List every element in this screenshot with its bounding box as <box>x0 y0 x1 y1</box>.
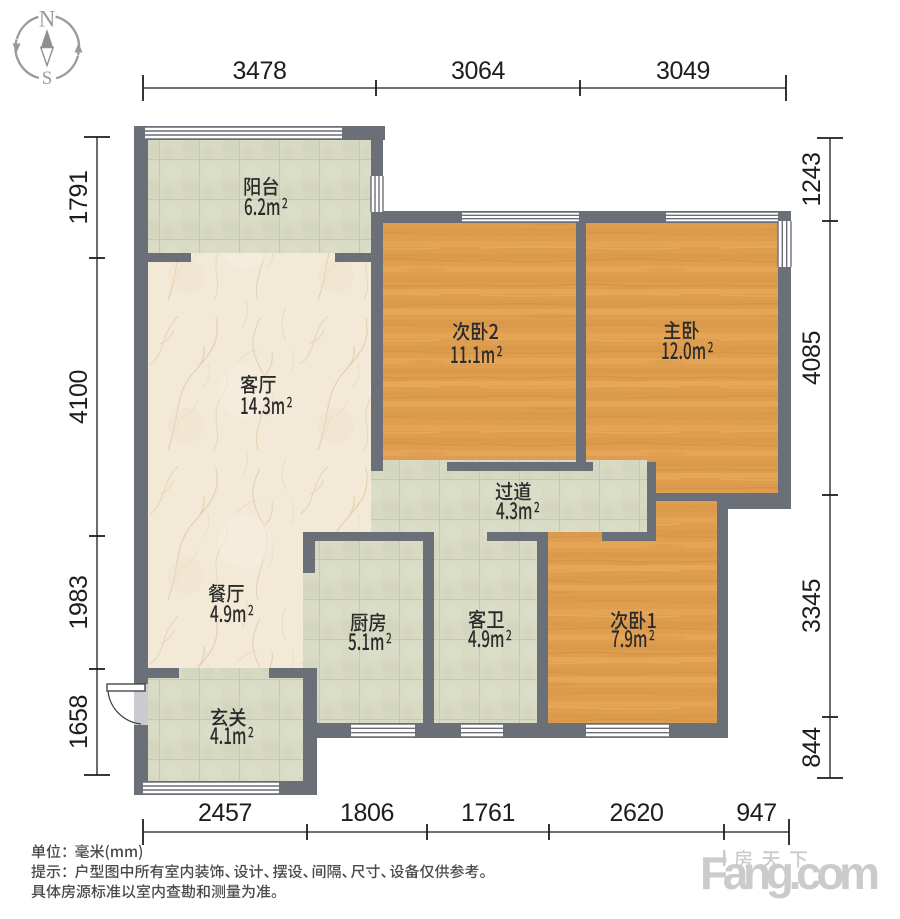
svg-text:N: N <box>39 7 56 32</box>
svg-text:4100: 4100 <box>65 370 93 424</box>
svg-text:1806: 1806 <box>340 799 394 827</box>
svg-text:1761: 1761 <box>461 799 515 827</box>
svg-text:3345: 3345 <box>798 579 826 633</box>
svg-text:3049: 3049 <box>656 57 710 85</box>
svg-text:1983: 1983 <box>65 575 93 629</box>
svg-text:3064: 3064 <box>451 57 506 85</box>
svg-text:1658: 1658 <box>65 695 93 749</box>
svg-text:S: S <box>42 68 53 89</box>
svg-text:1243: 1243 <box>798 152 826 206</box>
svg-text:2620: 2620 <box>609 799 663 827</box>
svg-text:1791: 1791 <box>65 170 93 224</box>
svg-text:844: 844 <box>798 727 826 768</box>
svg-text:4085: 4085 <box>798 331 826 385</box>
svg-text:3478: 3478 <box>232 57 286 85</box>
svg-text:947: 947 <box>736 799 777 827</box>
svg-text:2457: 2457 <box>198 799 252 827</box>
svg-text:Fang.com: Fang.com <box>700 847 880 899</box>
